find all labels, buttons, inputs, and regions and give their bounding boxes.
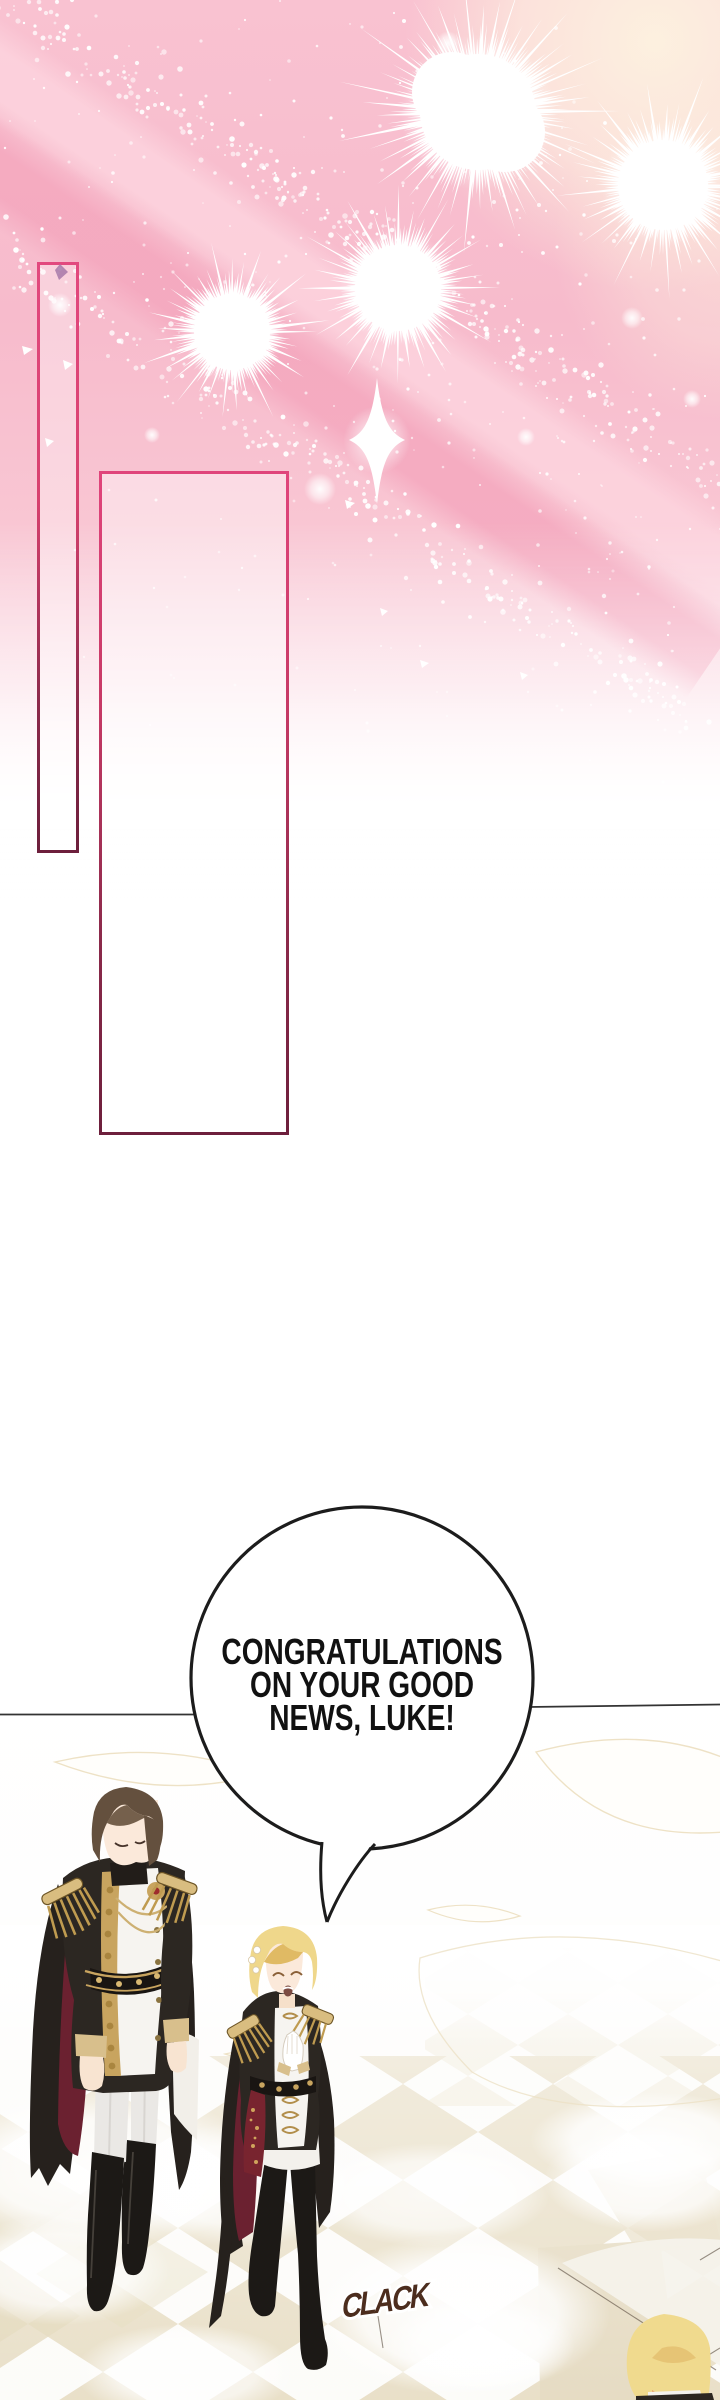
- svg-text:NEWS, LUKE!: NEWS, LUKE!: [269, 1698, 455, 1738]
